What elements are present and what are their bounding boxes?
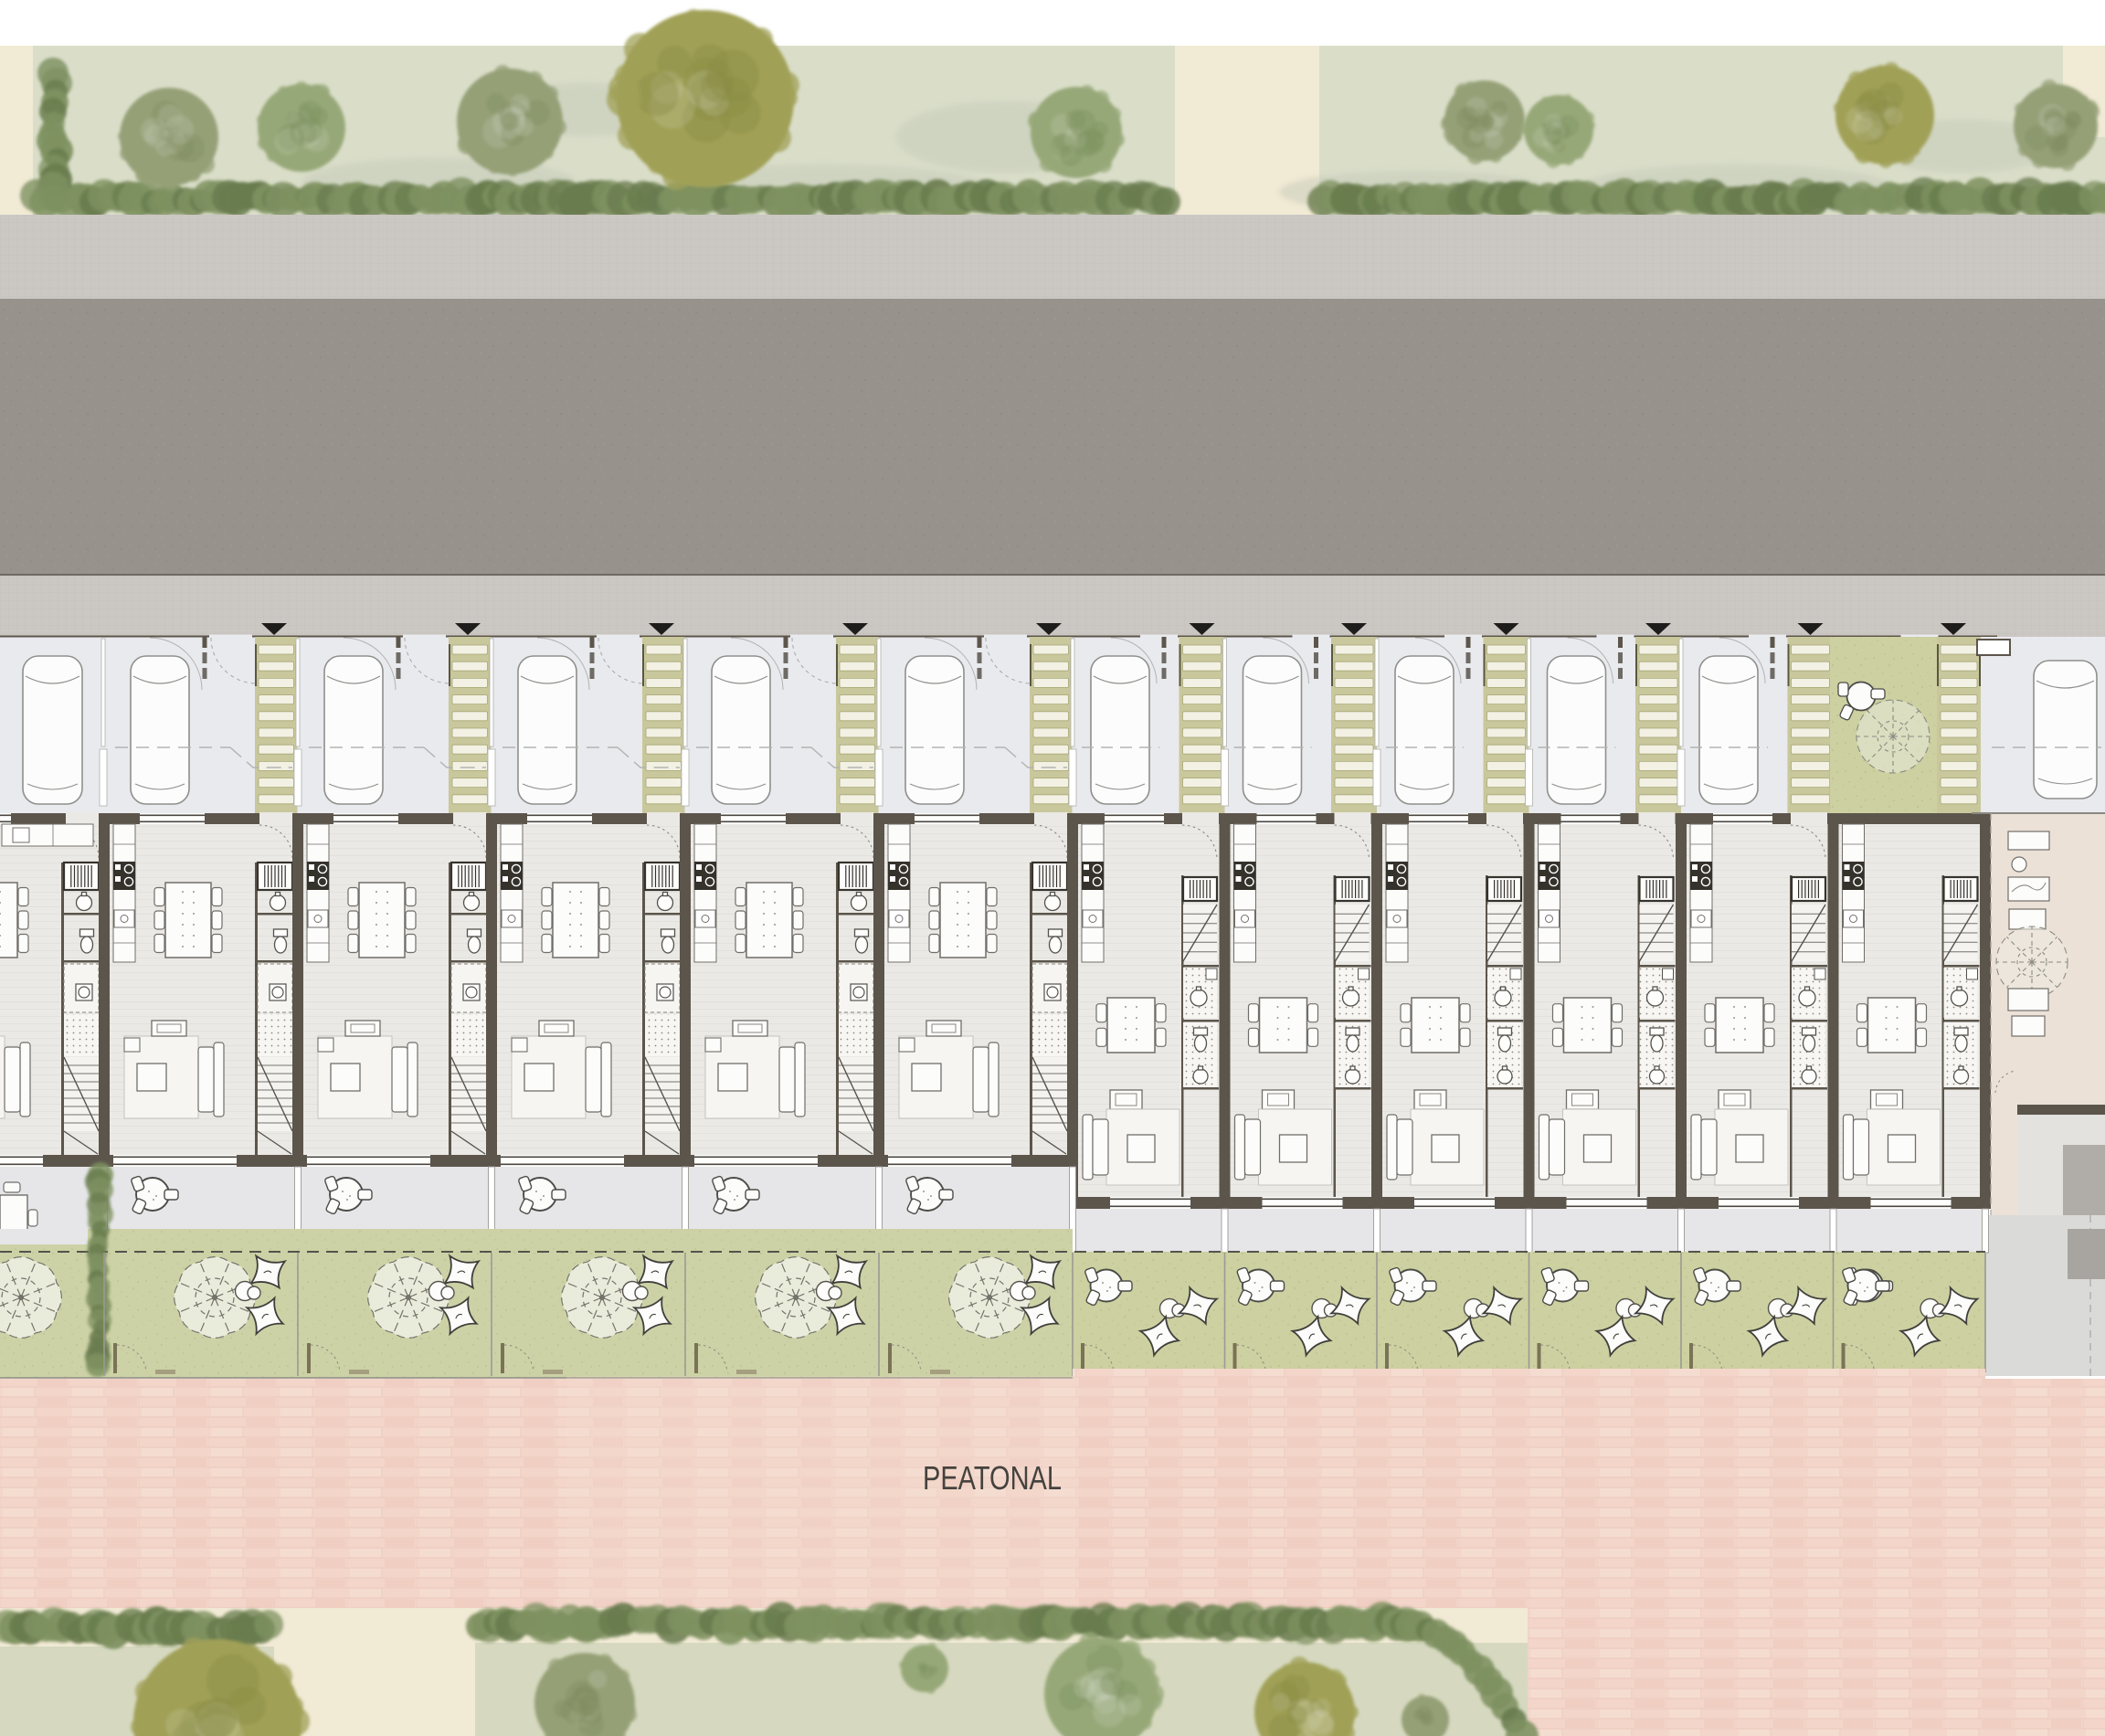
svg-text:PEATONAL: PEATONAL bbox=[923, 1459, 1062, 1497]
